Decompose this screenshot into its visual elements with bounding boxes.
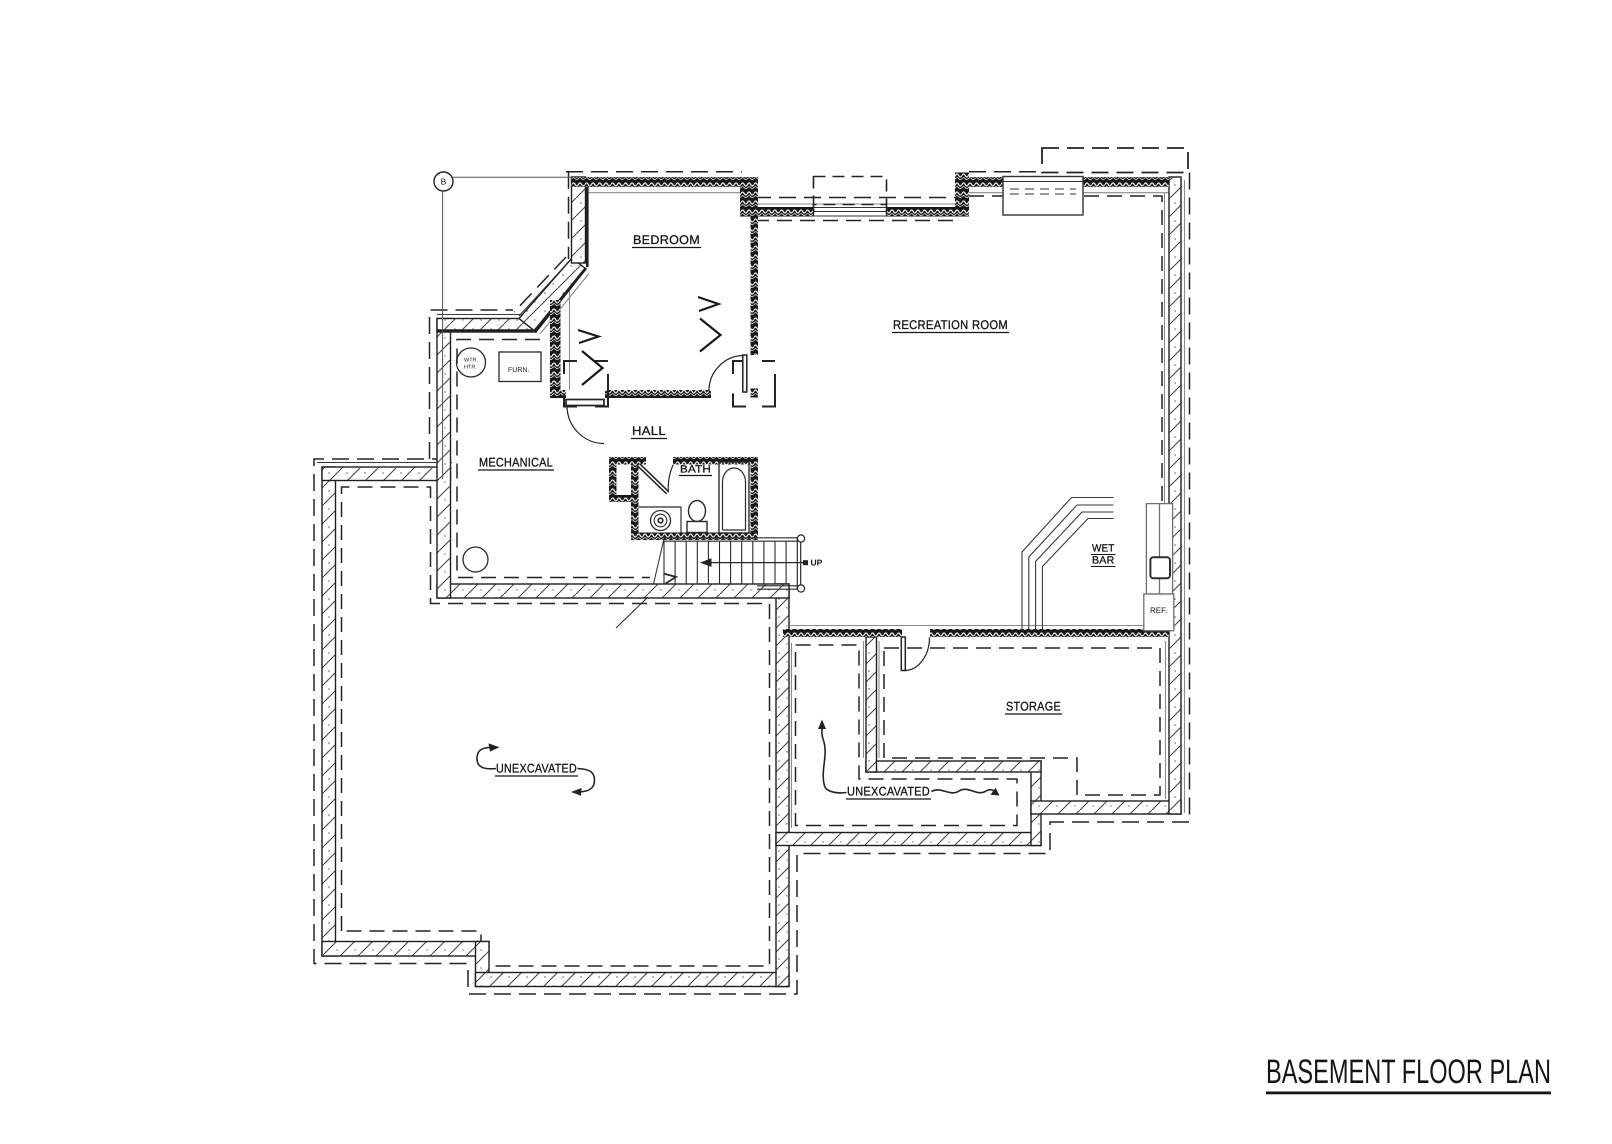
svg-text:FURN.: FURN. xyxy=(508,367,529,374)
svg-text:BEDROOM: BEDROOM xyxy=(633,233,700,247)
svg-text:HTR.: HTR. xyxy=(464,365,477,371)
svg-text:WTR.: WTR. xyxy=(464,358,479,364)
svg-text:UP: UP xyxy=(811,558,823,568)
svg-text:WET: WET xyxy=(1092,543,1115,555)
svg-text:BASEMENT FLOOR PLAN: BASEMENT FLOOR PLAN xyxy=(1266,1053,1551,1091)
svg-text:REF.: REF. xyxy=(1150,606,1167,615)
svg-text:STORAGE: STORAGE xyxy=(1006,700,1061,714)
svg-text:MECHANICAL: MECHANICAL xyxy=(479,456,553,470)
svg-text:HALL: HALL xyxy=(632,424,666,438)
svg-text:BAR: BAR xyxy=(1092,555,1115,567)
svg-text:BATH: BATH xyxy=(680,464,711,476)
svg-text:B: B xyxy=(441,177,447,187)
svg-text:RECREATION ROOM: RECREATION ROOM xyxy=(893,318,1008,332)
svg-text:UNEXCAVATED: UNEXCAVATED xyxy=(496,762,577,776)
svg-text:UNEXCAVATED: UNEXCAVATED xyxy=(847,785,930,799)
